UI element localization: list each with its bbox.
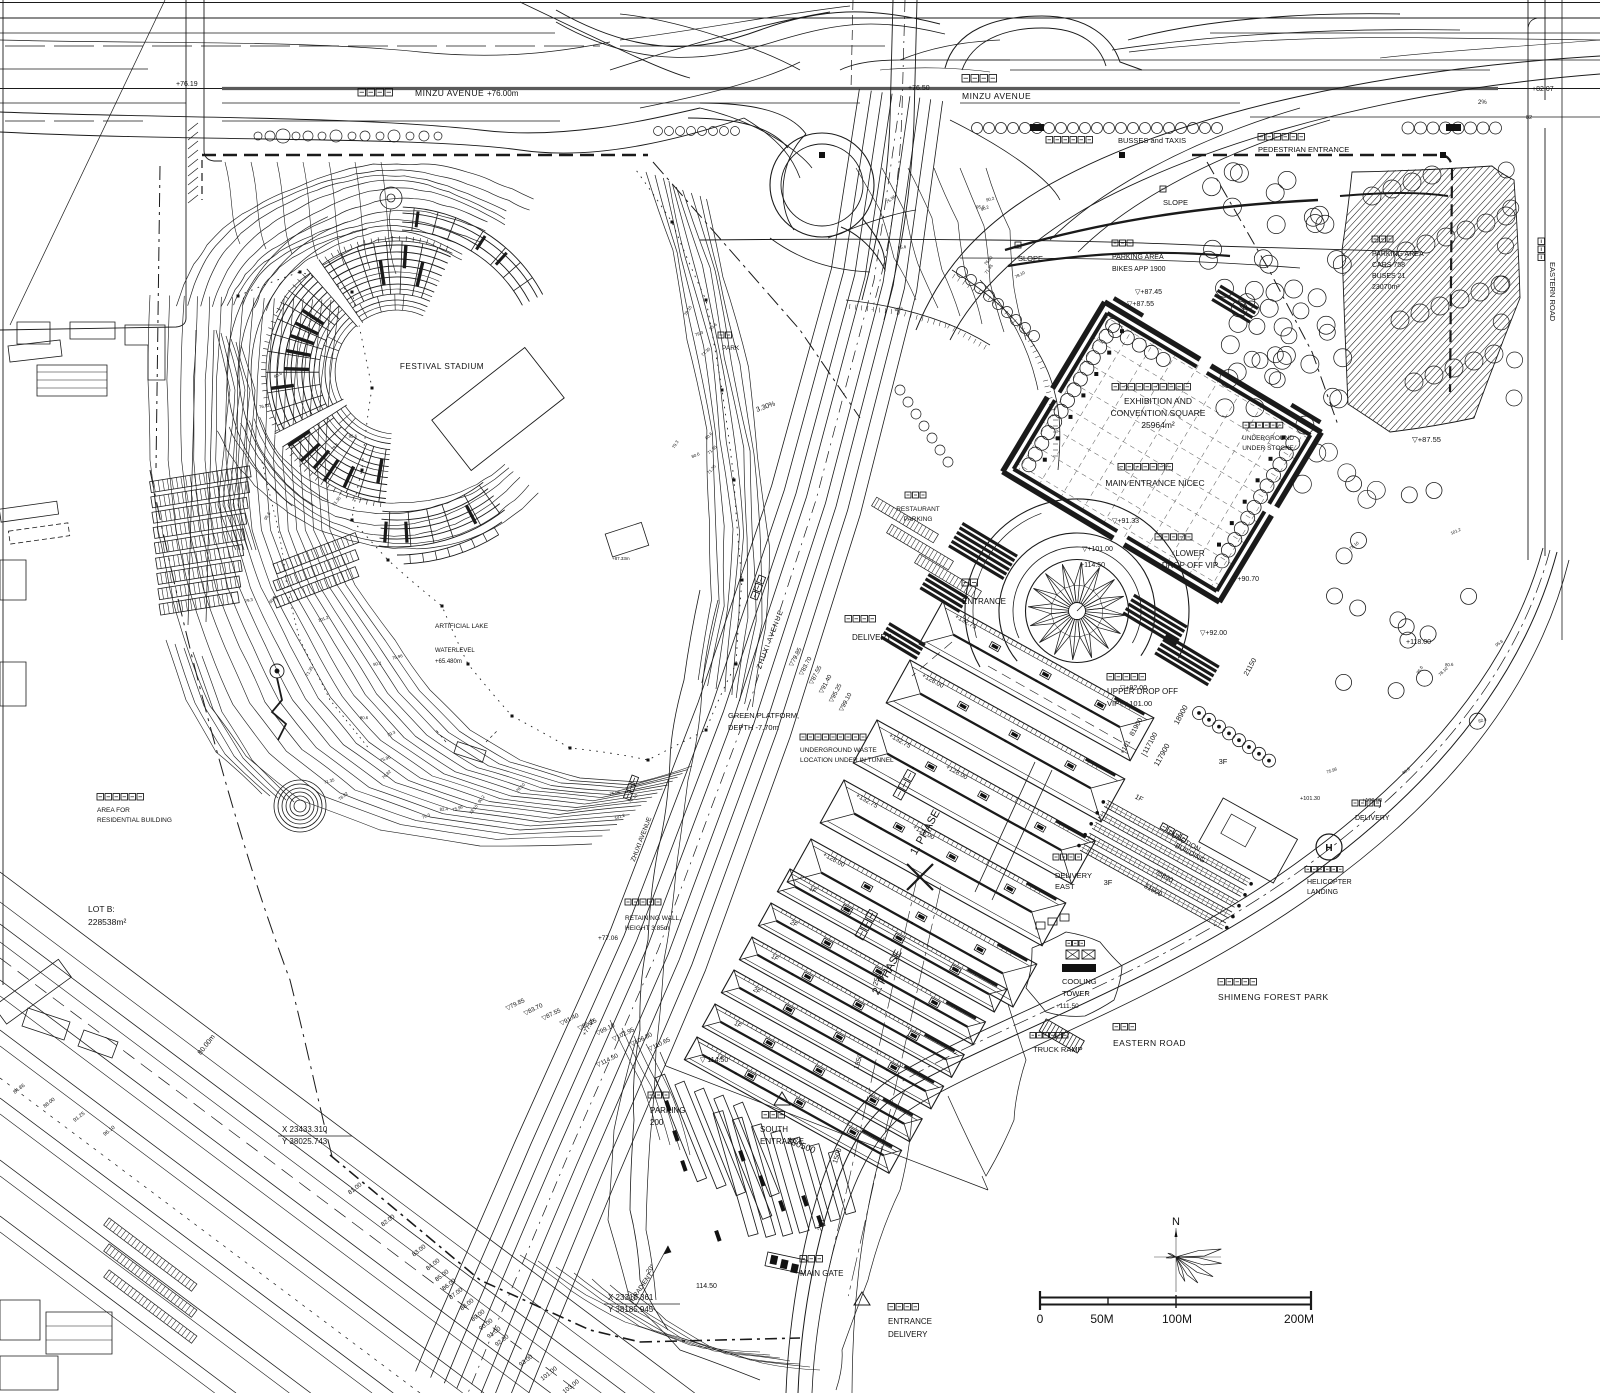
svg-text:DELIVERY: DELIVERY	[852, 633, 892, 642]
svg-text:+111.50: +111.50	[1056, 1003, 1079, 1010]
svg-text:3F: 3F	[1104, 878, 1113, 887]
svg-text:+77.06: +77.06	[598, 935, 618, 942]
svg-text:3F: 3F	[1219, 757, 1228, 766]
svg-text:LOWER: LOWER	[1175, 549, 1205, 558]
svg-text:WATERLEVEL: WATERLEVEL	[435, 648, 475, 654]
svg-text:SLOPE: SLOPE	[1163, 198, 1188, 207]
svg-text:ARTIFICIAL LAKE: ARTIFICIAL LAKE	[435, 623, 489, 630]
svg-text:ENTRANCE: ENTRANCE	[888, 1317, 932, 1326]
svg-text:MAIN ENTRANCE NICEC: MAIN ENTRANCE NICEC	[1105, 478, 1204, 488]
svg-text:EAST: EAST	[1055, 882, 1075, 891]
svg-text:ENTRANCE: ENTRANCE	[760, 1137, 804, 1146]
svg-text:UNDER STOCKE: UNDER STOCKE	[1242, 445, 1294, 452]
svg-text:PARK: PARK	[722, 345, 740, 352]
svg-text:+65.480m: +65.480m	[435, 659, 462, 665]
svg-text:GREEN PLATFORM,: GREEN PLATFORM,	[728, 711, 799, 720]
svg-text:95.6: 95.6	[349, 434, 358, 439]
svg-text:N: N	[1172, 1216, 1180, 1228]
svg-text:82: 82	[1526, 115, 1532, 121]
svg-text:DELIVERY: DELIVERY	[1055, 871, 1092, 880]
svg-text:BIKES APP 1900: BIKES APP 1900	[1112, 266, 1166, 273]
svg-text:BUSSES and TAXIS: BUSSES and TAXIS	[1118, 136, 1186, 145]
svg-text:ENTRANCE: ENTRANCE	[962, 597, 1006, 606]
svg-text:80.6: 80.6	[360, 715, 369, 720]
svg-text:▽ 114.50: ▽ 114.50	[700, 1057, 728, 1064]
svg-text:COOLING: COOLING	[1062, 977, 1097, 986]
svg-text:LANDING: LANDING	[1307, 889, 1338, 896]
svg-text:HELICOPTER: HELICOPTER	[1307, 879, 1352, 886]
svg-text:MAIN GATE: MAIN GATE	[800, 1269, 843, 1278]
svg-text:82.4: 82.4	[439, 806, 448, 812]
svg-text:SLOPE: SLOPE	[1018, 254, 1043, 263]
svg-text:PARKING AREA: PARKING AREA	[1372, 251, 1424, 258]
svg-text:LOCATION UNDER IN TUNNEL: LOCATION UNDER IN TUNNEL	[800, 757, 894, 764]
svg-text:X 23433.310: X 23433.310	[282, 1125, 328, 1134]
svg-text:HEIGHT 3.85m: HEIGHT 3.85m	[625, 925, 669, 932]
svg-text:EASTERN ROAD: EASTERN ROAD	[1548, 262, 1557, 322]
svg-text:MINZU AVENUE: MINZU AVENUE	[962, 91, 1031, 101]
svg-text:Y 38185.945: Y 38185.945	[608, 1305, 654, 1314]
svg-text:+76.19: +76.19	[176, 81, 198, 88]
svg-text:Y 38025.743: Y 38025.743	[282, 1137, 328, 1146]
svg-text:+87.33m: +87.33m	[612, 556, 630, 561]
svg-text:AREA FOR: AREA FOR	[97, 807, 130, 814]
svg-text:SOUTH: SOUTH	[760, 1125, 788, 1134]
svg-text:23070m²: 23070m²	[1372, 284, 1400, 291]
svg-text:DELIVERY: DELIVERY	[888, 1330, 928, 1339]
svg-text:EASTERN ROAD: EASTERN ROAD	[1113, 1038, 1186, 1048]
svg-text:▽+90.70: ▽+90.70	[1232, 576, 1259, 583]
svg-text:25964m²: 25964m²	[1141, 420, 1175, 430]
svg-text:LOT B:: LOT B:	[88, 904, 115, 914]
svg-text:2%: 2%	[1478, 100, 1487, 106]
svg-text:95.6: 95.6	[976, 204, 985, 209]
svg-text:200M: 200M	[1284, 1312, 1314, 1326]
svg-text:228538m²: 228538m²	[88, 917, 126, 927]
svg-text:50M: 50M	[1090, 1312, 1113, 1326]
svg-text:▽+87.55: ▽+87.55	[1412, 435, 1441, 444]
svg-text:RESIDENTIAL BUILDING: RESIDENTIAL BUILDING	[97, 817, 172, 824]
svg-text:RESTAURANT: RESTAURANT	[896, 506, 940, 513]
svg-text:FESTIVAL STADIUM: FESTIVAL STADIUM	[400, 362, 484, 371]
svg-text:+101.30: +101.30	[1300, 796, 1320, 802]
svg-text:▽+91.33: ▽+91.33	[1112, 518, 1139, 525]
svg-text:CONVENTION SQUARE: CONVENTION SQUARE	[1111, 408, 1206, 418]
svg-text:0: 0	[1037, 1312, 1044, 1326]
svg-text:EXHIBITION AND: EXHIBITION AND	[1124, 396, 1192, 406]
svg-text:PARKING AREA: PARKING AREA	[1112, 254, 1164, 261]
svg-text:PARKING: PARKING	[650, 1106, 685, 1115]
svg-text:BUSES 21: BUSES 21	[1372, 273, 1406, 280]
svg-text:TOWER: TOWER	[1062, 989, 1090, 998]
svg-text:MINZU AVENUE: MINZU AVENUE	[415, 88, 484, 98]
svg-text:▽+92.00: ▽+92.00	[1200, 630, 1227, 637]
svg-text:H: H	[1325, 843, 1332, 854]
svg-text:UNDERGROUND: UNDERGROUND	[1242, 435, 1294, 442]
svg-text:▽+101.00: ▽+101.00	[1082, 546, 1113, 553]
svg-text:114.50: 114.50	[696, 1283, 717, 1290]
svg-text:+118.00: +118.00	[1406, 639, 1431, 646]
svg-text:DEPTH -7.70m: DEPTH -7.70m	[728, 723, 779, 732]
svg-text:+82.07: +82.07	[1532, 86, 1554, 93]
svg-text:100M: 100M	[1162, 1312, 1192, 1326]
svg-text:CARS 758: CARS 758	[1372, 262, 1405, 269]
svg-text:PEDESTRIAN ENTRANCE: PEDESTRIAN ENTRANCE	[1258, 145, 1349, 154]
svg-text:▽+87.55: ▽+87.55	[1127, 301, 1154, 308]
svg-text:80.6: 80.6	[1445, 662, 1454, 668]
svg-text:+76.50: +76.50	[908, 85, 930, 92]
svg-text:DROP OFF VIP: DROP OFF VIP	[1162, 561, 1218, 570]
svg-text:SHIMENG FOREST PARK: SHIMENG FOREST PARK	[1218, 992, 1329, 1002]
svg-text:▽+92.00: ▽+92.00	[1120, 685, 1147, 692]
svg-text:TRUCK RAMP: TRUCK RAMP	[1033, 1045, 1083, 1054]
svg-text:RETAINING WALL,: RETAINING WALL,	[625, 915, 681, 922]
svg-text:+76.00m: +76.00m	[487, 89, 519, 98]
svg-text:▽+87.45: ▽+87.45	[1135, 289, 1162, 296]
svg-text:UNDERGROUND WASTE: UNDERGROUND WASTE	[800, 747, 877, 754]
svg-text:PARKING: PARKING	[904, 516, 933, 523]
